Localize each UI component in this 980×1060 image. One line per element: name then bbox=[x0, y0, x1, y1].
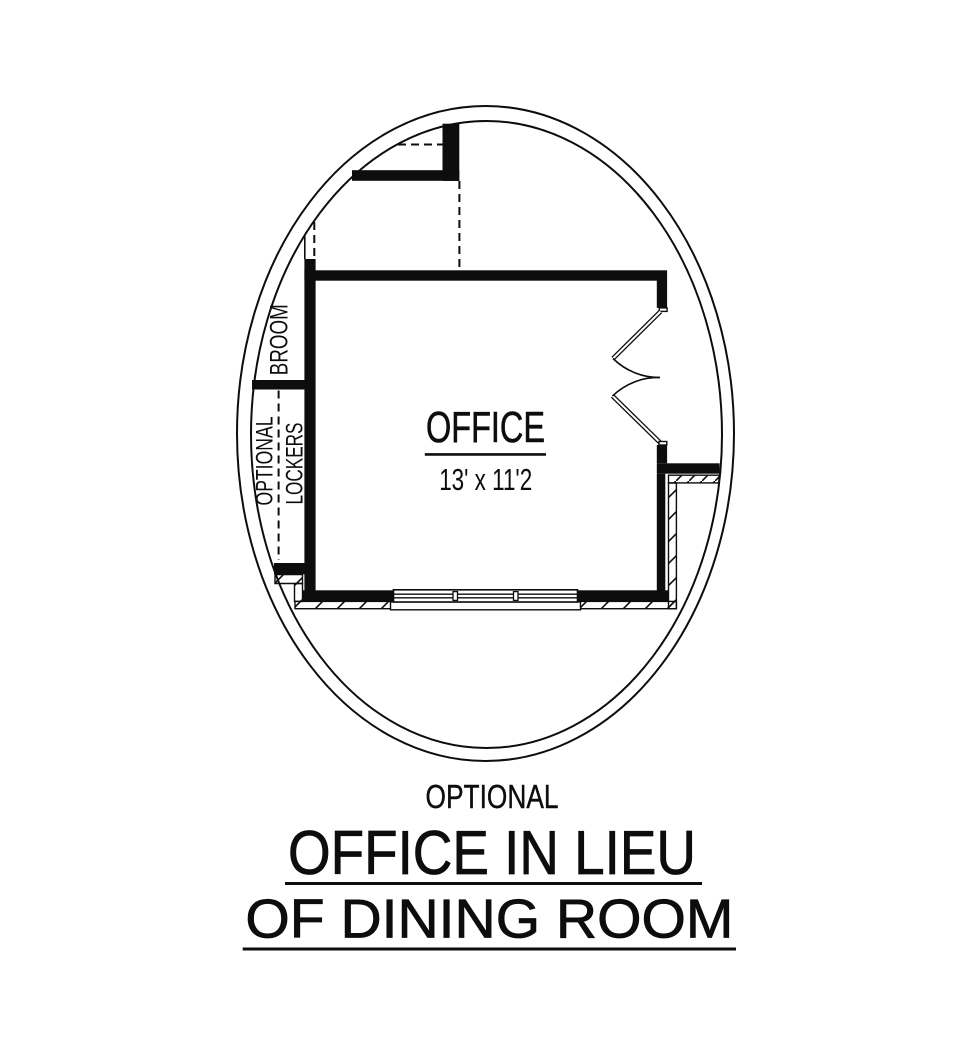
svg-text:LOCKERS: LOCKERS bbox=[282, 423, 309, 505]
svg-text:OPTIONAL: OPTIONAL bbox=[251, 417, 278, 506]
svg-text:OF DINING ROOM: OF DINING ROOM bbox=[245, 888, 733, 950]
svg-text:OPTIONAL: OPTIONAL bbox=[426, 778, 559, 815]
svg-text:13' x 11'2: 13' x 11'2 bbox=[439, 462, 532, 497]
svg-text:OFFICE: OFFICE bbox=[426, 403, 545, 452]
svg-text:BROOM: BROOM bbox=[266, 304, 294, 375]
svg-text:OFFICE IN LIEU: OFFICE IN LIEU bbox=[288, 819, 696, 888]
